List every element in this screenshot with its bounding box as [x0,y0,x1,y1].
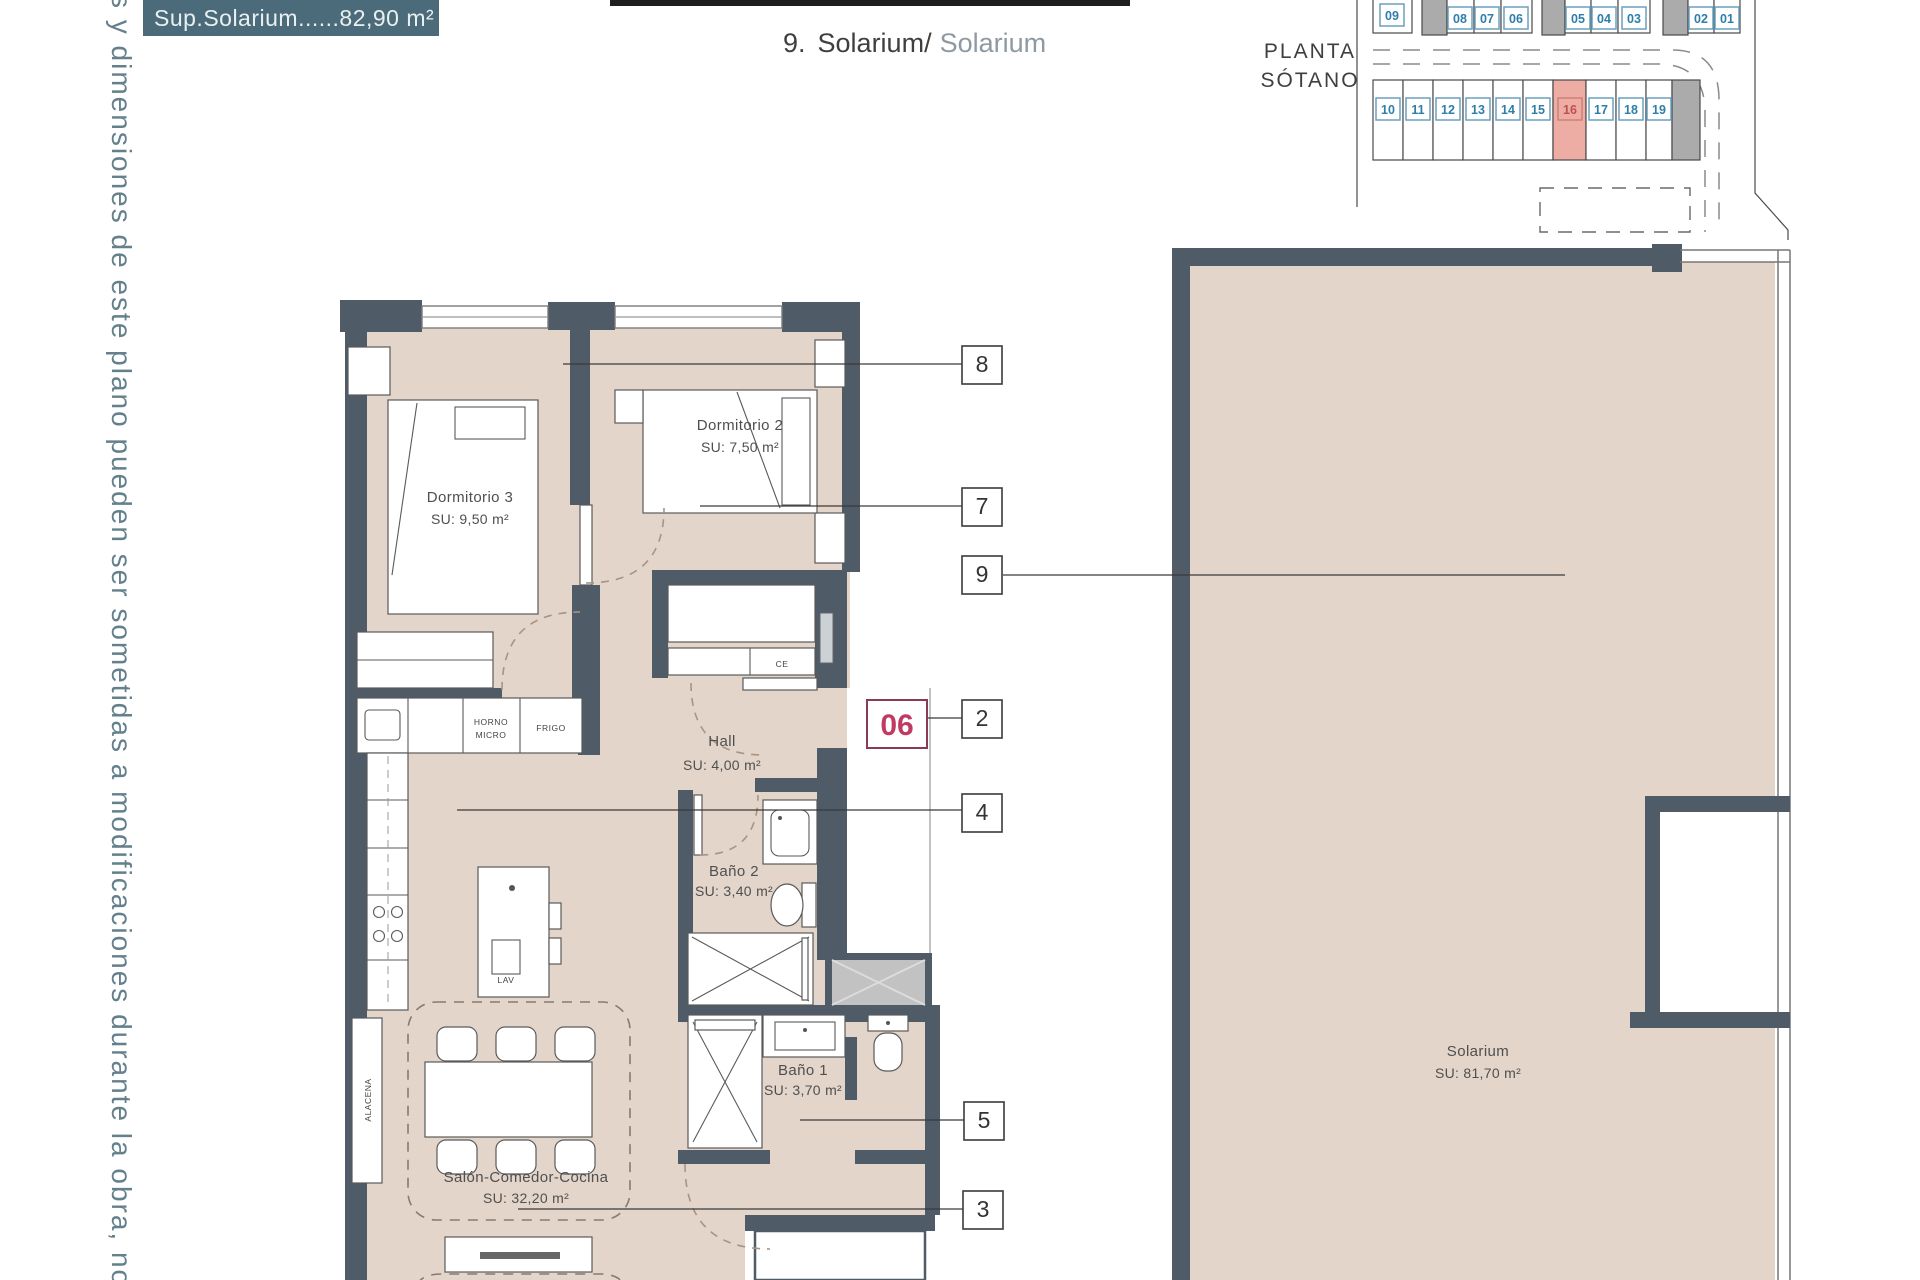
solarium-name: Solarium [1447,1043,1509,1060]
elevator-shaft [825,953,932,1012]
floorplan-page: Sup.Solarium......82,90 m² 9.Solarium/So… [0,0,1920,1280]
site-plan-title-1: PLANTA [1264,40,1356,63]
callout-7: 7 [976,493,989,519]
unit-badge-12: 12 [1441,103,1455,117]
solarium-terrace [1172,244,1790,1280]
legend-name: Solarium/ [818,28,933,58]
horno-label-2: MICRO [476,730,507,740]
unit-badge-04: 04 [1597,12,1611,26]
dorm2-name: Dormitorio 2 [697,417,784,434]
unit-06-number: 06 [880,709,913,742]
unit-badge-05: 05 [1571,12,1585,26]
entrance-door-leaf [743,678,817,690]
unit-badge-10: 10 [1381,103,1395,117]
bano1-area: SU: 3,70 m² [764,1082,842,1098]
dorm2-nightstand [615,390,643,423]
unit-badge-14: 14 [1501,103,1515,117]
unit-06-badge: 06 [867,700,927,748]
dorm3-name: Dormitorio 3 [427,489,514,506]
solarium-area: SU: 81,70 m² [1435,1065,1521,1081]
hall-area: SU: 4,00 m² [683,757,761,773]
side-disclaimer-text: s y dimensiones de este plano pueden ser… [106,0,137,1280]
ce-label: CE [776,659,789,669]
unit-badge-15: 15 [1531,103,1545,117]
salon-name: Salón-Comedor-Cocina [444,1169,609,1186]
dorm3-area: SU: 9,50 m² [431,511,509,527]
callout-2: 2 [976,705,989,731]
unit-badge-18: 18 [1624,103,1638,117]
unit-badge-08: 08 [1453,12,1467,26]
unit-badge-07: 07 [1480,12,1494,26]
unit-badge-02: 02 [1694,12,1708,26]
callout-5: 5 [978,1107,991,1133]
tv-sideboard [445,1237,592,1272]
lav-label: LAV [498,975,515,985]
kitchen-island: LAV [478,867,561,997]
unit-badge-13: 13 [1471,103,1485,117]
callout-4: 4 [976,799,989,825]
bano2-name: Baño 2 [709,863,759,880]
apartment-plan: CE HORNO MICRO FRIGO [340,300,940,1280]
adjacent-room [755,1231,925,1280]
dorm2-area: SU: 7,50 m² [701,439,779,455]
top-rule-bar [610,0,1130,6]
legend-number: 9. [783,28,806,58]
hall-name: Hall [708,733,735,750]
solarium-area-label: Sup.Solarium......82,90 m² [154,5,434,31]
site-plan-title-2: SÓTANO [1260,69,1359,92]
unit-badge-03: 03 [1627,12,1641,26]
unit-badge-06: 06 [1509,12,1523,26]
hall-closet: CE [668,585,815,675]
bano1-name: Baño 1 [778,1062,828,1079]
plan-drawing: Sup.Solarium......82,90 m² 9.Solarium/So… [0,0,1920,1280]
shaft-door [820,613,833,663]
legend-name-alt: Solarium [940,28,1047,58]
unit-badge-19: 19 [1652,103,1666,117]
site-plan: PLANTA SÓTANO 0 [1260,0,1788,240]
legend-title: 9.Solarium/Solarium [783,28,1046,58]
callout-9: 9 [976,561,989,587]
callout-8: 8 [976,351,989,377]
alacena-cabinet: ALACENA [352,1018,382,1183]
unit-badge-17: 17 [1594,103,1608,117]
salon-area: SU: 32,20 m² [483,1190,569,1206]
alacena-label: ALACENA [363,1078,373,1121]
horno-label-1: HORNO [474,717,508,727]
callout-boxes: 8 7 9 2 4 5 3 [962,346,1004,1229]
callout-3: 3 [977,1196,990,1222]
unit-badge-09: 09 [1385,9,1399,23]
dorm3-bed [388,400,538,614]
unit-badge-16-highlighted: 16 [1563,103,1577,117]
unit-badge-01: 01 [1720,12,1734,26]
frigo-label: FRIGO [536,723,565,733]
unit-badge-11: 11 [1411,103,1424,117]
bano2-area: SU: 3,40 m² [695,883,773,899]
